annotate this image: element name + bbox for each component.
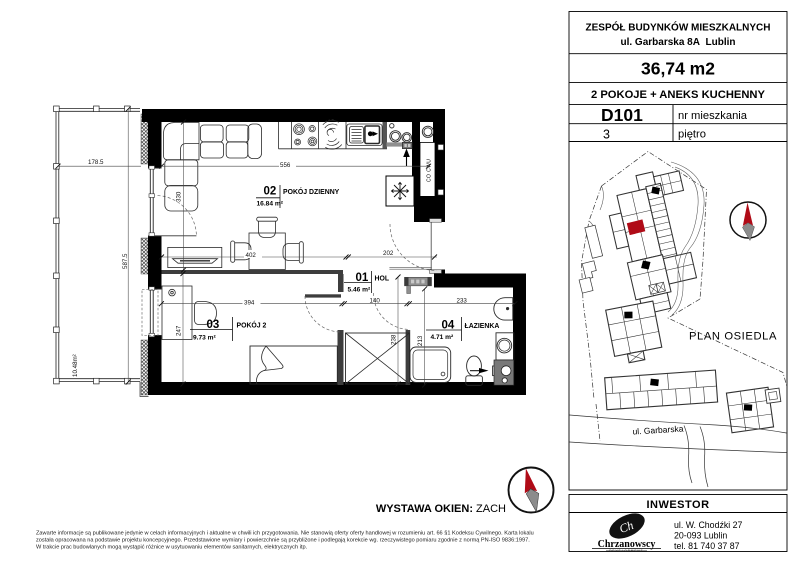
svg-text:213: 213 — [417, 335, 424, 346]
svg-text:nr mieszkania: nr mieszkania — [678, 110, 748, 122]
svg-text:233: 233 — [457, 297, 468, 304]
svg-text:W trakcie prac budowlanych mog: W trakcie prac budowlanych mogą wystąpić… — [36, 545, 308, 551]
svg-text:10.48m²: 10.48m² — [72, 354, 79, 377]
svg-text:ZESPÓŁ BUDYNKÓW MIESZKALNYCH: ZESPÓŁ BUDYNKÓW MIESZKALNYCH — [586, 21, 771, 34]
svg-text:została opracowana na podstawi: została opracowana na podstawie projektu… — [36, 538, 530, 544]
svg-text:16.84 m²: 16.84 m² — [257, 201, 284, 208]
svg-text:D101: D101 — [601, 105, 643, 125]
svg-text:DEVELOPMENT: DEVELOPMENT — [609, 548, 643, 552]
svg-text:WYSTAWA OKIEN: ZACH: WYSTAWA OKIEN: ZACH — [376, 503, 506, 515]
svg-text:ŁAZIENKA: ŁAZIENKA — [465, 323, 500, 330]
svg-text:tel. 81 740 37 87: tel. 81 740 37 87 — [674, 541, 740, 551]
svg-text:ul. Garbarska 8A Lublin: ul. Garbarska 8A Lublin — [620, 37, 735, 48]
svg-text:POKÓJ DZIENNY: POKÓJ DZIENNY — [283, 187, 340, 196]
svg-text:36,74 m2: 36,74 m2 — [641, 59, 715, 79]
svg-text:piętro: piętro — [678, 129, 706, 141]
svg-text:4.71 m²: 4.71 m² — [431, 334, 455, 341]
svg-text:2 POKOJE + ANEKS KUCHENNY: 2 POKOJE + ANEKS KUCHENNY — [591, 89, 766, 101]
svg-text:178.5: 178.5 — [88, 159, 104, 166]
svg-text:3: 3 — [603, 128, 610, 142]
svg-text:202: 202 — [383, 250, 394, 257]
svg-text:HOL: HOL — [375, 276, 390, 283]
svg-text:Zawarte informacje są publikow: Zawarte informacje są publikowane jedyni… — [36, 531, 534, 537]
svg-text:140: 140 — [370, 297, 381, 304]
svg-text:02: 02 — [264, 186, 277, 198]
svg-text:238: 238 — [390, 334, 397, 345]
svg-text:402: 402 — [246, 252, 257, 259]
svg-text:PLAN OSIEDLA: PLAN OSIEDLA — [689, 331, 777, 343]
svg-text:CO CWU: CO CWU — [427, 159, 433, 182]
svg-text:247: 247 — [175, 325, 182, 336]
svg-text:ul. W. Chodźki 27: ul. W. Chodźki 27 — [674, 520, 743, 530]
svg-text:394: 394 — [244, 300, 255, 307]
svg-text:POKÓJ 2: POKÓJ 2 — [237, 321, 267, 330]
svg-text:587.5: 587.5 — [122, 253, 129, 269]
svg-text:INWESTOR: INWESTOR — [646, 499, 709, 511]
svg-text:5.46 m²: 5.46 m² — [348, 287, 372, 294]
svg-text:20-093 Lublin: 20-093 Lublin — [674, 530, 727, 540]
svg-text:556: 556 — [280, 162, 291, 169]
svg-text:9.73 m²: 9.73 m² — [193, 335, 217, 342]
svg-text:330: 330 — [176, 191, 183, 202]
